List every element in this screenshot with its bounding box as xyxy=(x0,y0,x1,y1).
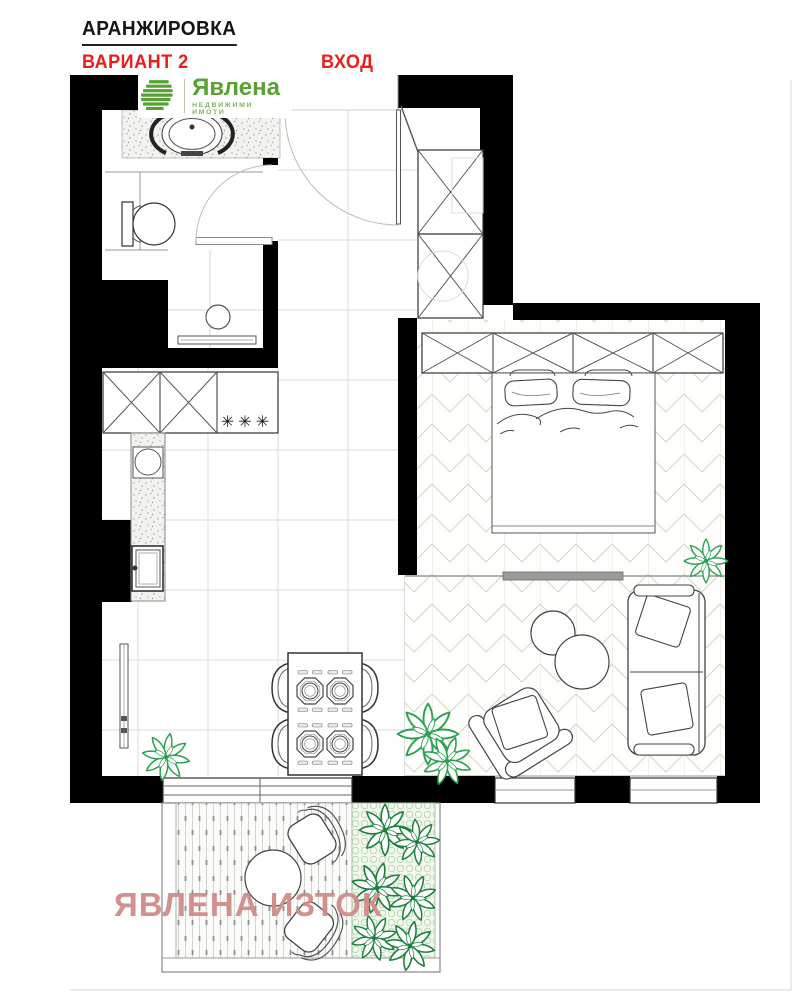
kitchen-sink xyxy=(133,447,163,478)
bathroom-door-leaf xyxy=(196,238,272,245)
variant-label: ВАРИАНТ 2 xyxy=(82,52,189,74)
living-room-window-2 xyxy=(630,778,717,803)
floor-plan-drawing: ✳✳✳ xyxy=(0,0,800,1000)
hob-burners-symbol: ✳✳✳ xyxy=(221,412,273,431)
yavlena-logo: Явлена НЕДВИЖИМИ ИМОТИ xyxy=(138,74,292,118)
plant-icon xyxy=(684,539,728,583)
living-room-window xyxy=(495,778,575,803)
yavlena-stripes-icon xyxy=(141,78,177,114)
kitchen-counter xyxy=(131,433,165,601)
logo-divider xyxy=(184,79,185,113)
balcony-sliding-door xyxy=(163,778,352,803)
bedroom-wardrobe xyxy=(422,333,723,373)
dining-area xyxy=(272,653,378,775)
logo-name: Явлена xyxy=(192,76,289,100)
bed xyxy=(492,370,655,533)
toilet xyxy=(122,202,175,246)
kitchen-cabinets: ✳✳✳ xyxy=(103,372,278,433)
floor-plan-page: ✳✳✳ xyxy=(0,0,800,1000)
entrance-label: ВХОД xyxy=(321,52,373,74)
entry-door-leaf xyxy=(397,110,401,224)
logo-tagline: НЕДВИЖИМИ ИМОТИ xyxy=(192,102,289,116)
sofa xyxy=(628,585,705,755)
page-title: АРАНЖИРОВКА xyxy=(82,18,236,46)
sofa-pillow xyxy=(640,682,693,735)
radiator xyxy=(120,644,128,748)
watermark-text: ЯВЛЕНА ИЗТОК xyxy=(114,886,383,924)
oven xyxy=(132,546,163,591)
